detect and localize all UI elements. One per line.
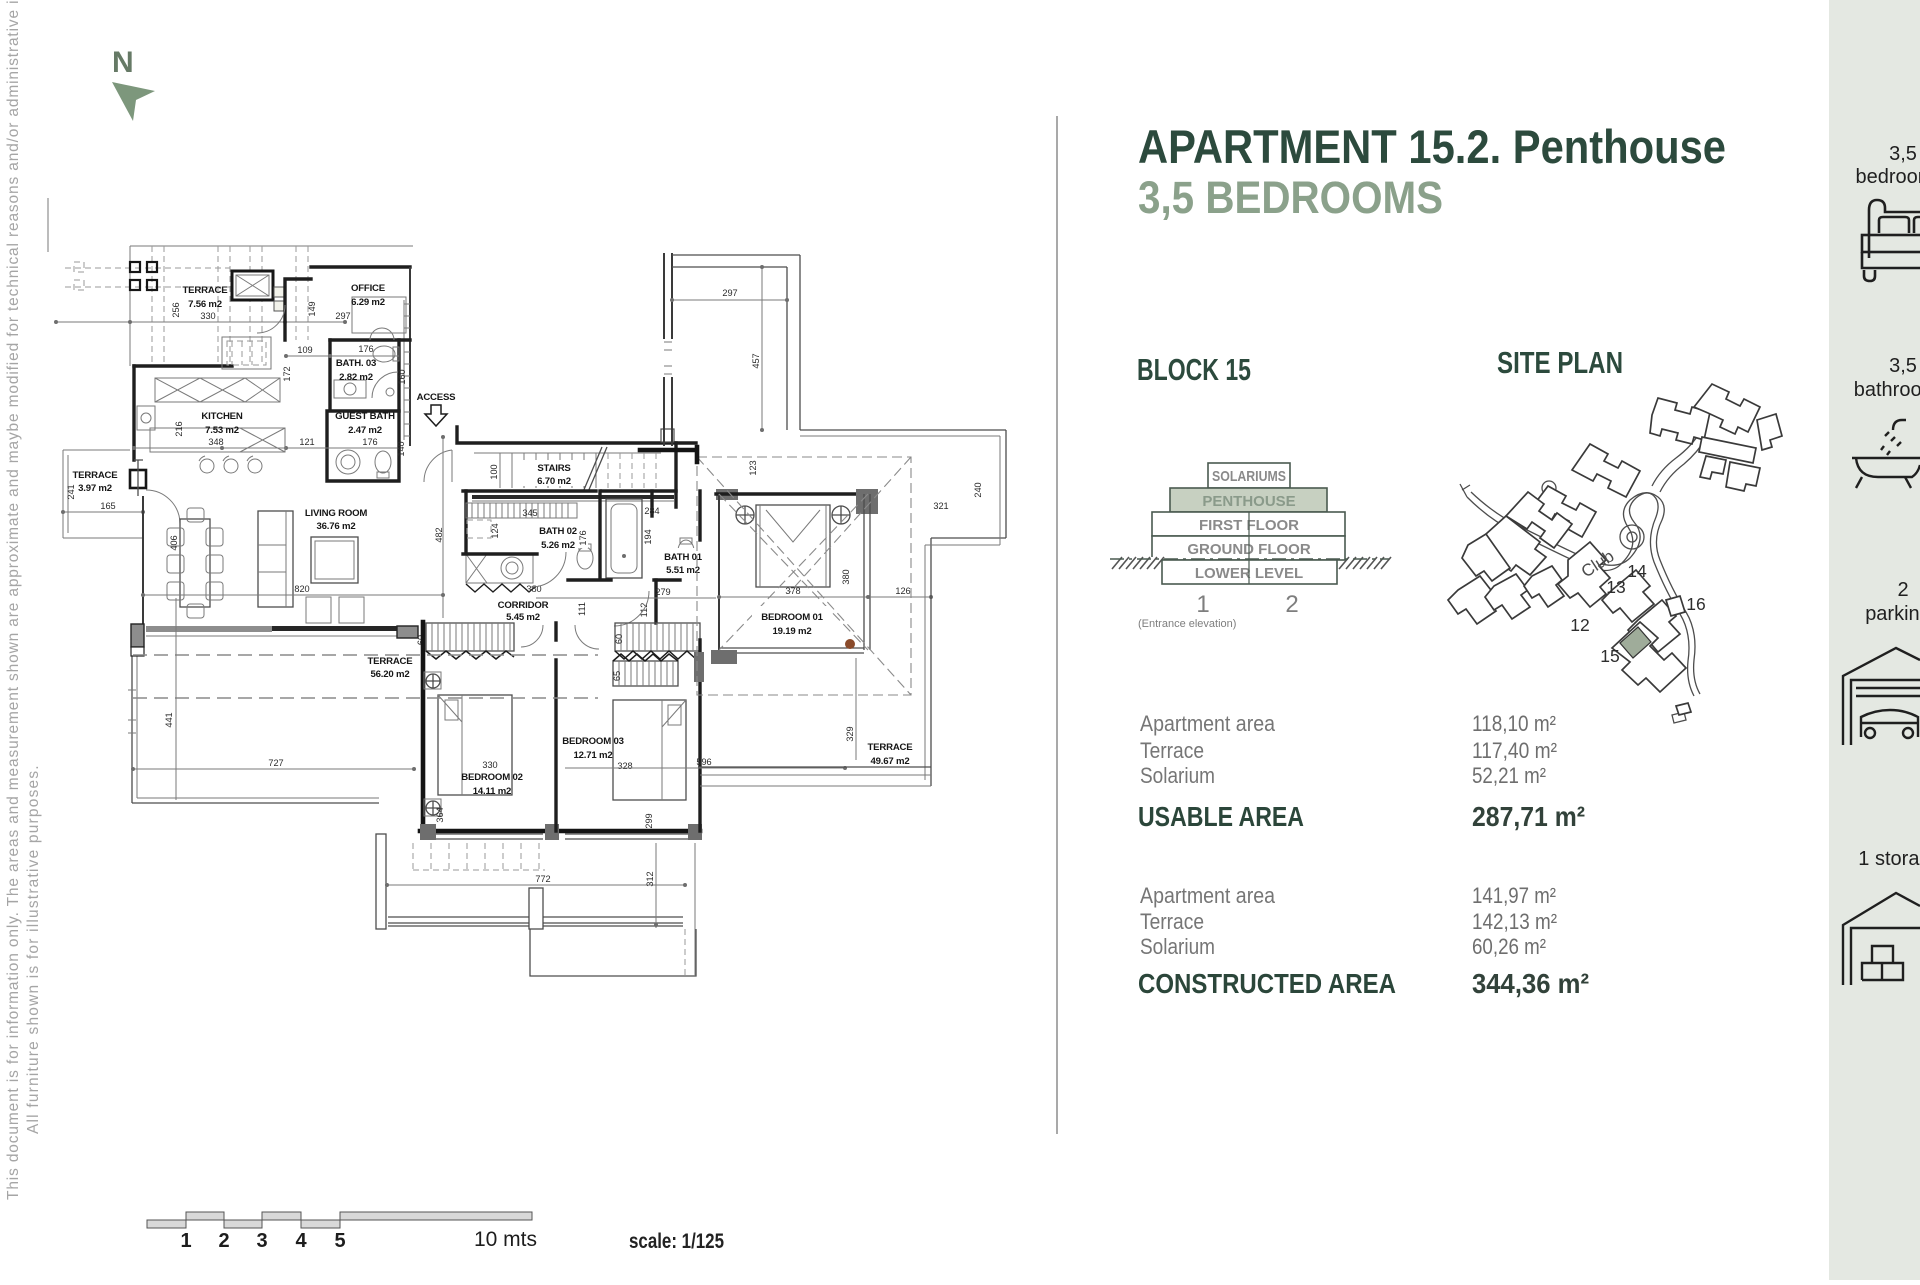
svg-text:3,5: 3,5 [1889, 355, 1917, 377]
svg-text:216: 216 [174, 421, 184, 436]
svg-text:TERRACE: TERRACE [868, 742, 914, 753]
svg-text:344,36 m²: 344,36 m² [1472, 968, 1589, 999]
svg-text:5.45 m2: 5.45 m2 [506, 612, 540, 623]
svg-text:328: 328 [617, 761, 632, 771]
svg-text:SOLARIUMS: SOLARIUMS [1212, 468, 1286, 485]
svg-text:141,97 m²: 141,97 m² [1472, 883, 1556, 908]
svg-text:297: 297 [335, 311, 350, 321]
svg-text:124: 124 [490, 523, 500, 538]
svg-text:330: 330 [482, 760, 497, 770]
svg-text:scale: 1/125: scale: 1/125 [629, 1230, 724, 1253]
svg-text:56.20 m2: 56.20 m2 [371, 669, 410, 680]
svg-text:299: 299 [644, 813, 654, 828]
svg-text:OFFICE: OFFICE [351, 283, 386, 294]
svg-text:126: 126 [895, 586, 910, 596]
svg-text:165: 165 [100, 501, 115, 511]
svg-text:2: 2 [1897, 579, 1908, 601]
svg-text:16: 16 [1686, 594, 1705, 614]
svg-text:bathrooms: bathrooms [1854, 379, 1920, 401]
svg-text:3.97 m2: 3.97 m2 [78, 483, 112, 494]
svg-text:772: 772 [535, 874, 550, 884]
svg-text:This document is for informati: This document is for information only. T… [5, 0, 22, 1200]
svg-text:2.47 m2: 2.47 m2 [348, 425, 382, 436]
svg-text:457: 457 [751, 353, 761, 368]
svg-text:3: 3 [256, 1230, 267, 1252]
svg-text:820: 820 [294, 584, 309, 594]
svg-text:329: 329 [845, 726, 855, 741]
svg-text:14: 14 [1627, 561, 1647, 581]
svg-text:parkings: parkings [1865, 603, 1920, 625]
svg-text:6.29 m2: 6.29 m2 [351, 297, 385, 308]
svg-text:111: 111 [577, 602, 587, 616]
svg-text:4: 4 [295, 1230, 307, 1252]
svg-text:240: 240 [973, 482, 983, 497]
svg-text:Apartment area: Apartment area [1140, 883, 1276, 908]
svg-text:LIVING ROOM: LIVING ROOM [305, 508, 367, 519]
svg-text:1: 1 [1196, 591, 1209, 618]
svg-text:172: 172 [282, 366, 292, 381]
svg-text:3,5 BEDROOMS: 3,5 BEDROOMS [1138, 172, 1443, 223]
svg-text:BLOCK 15: BLOCK 15 [1137, 352, 1251, 387]
svg-text:65: 65 [612, 671, 622, 681]
svg-text:100: 100 [489, 464, 499, 479]
svg-text:287,71 m²: 287,71 m² [1472, 801, 1585, 832]
svg-text:60: 60 [614, 634, 624, 644]
svg-text:406: 406 [169, 535, 179, 550]
svg-text:2: 2 [218, 1230, 229, 1252]
svg-text:142,13 m²: 142,13 m² [1472, 909, 1557, 934]
svg-text:BEDROOM 02: BEDROOM 02 [461, 772, 522, 783]
svg-text:Solarium: Solarium [1140, 763, 1215, 788]
svg-text:140: 140 [396, 441, 406, 456]
svg-text:13: 13 [1606, 577, 1625, 597]
svg-text:SITE PLAN: SITE PLAN [1497, 345, 1623, 380]
svg-text:Terrace: Terrace [1140, 909, 1204, 934]
svg-text:TERRACE: TERRACE [183, 285, 229, 296]
svg-text:330: 330 [200, 311, 215, 321]
svg-text:GUEST BATH: GUEST BATH [335, 411, 395, 422]
svg-text:312: 312 [645, 871, 655, 886]
svg-text:596: 596 [696, 757, 711, 767]
svg-text:364: 364 [435, 807, 445, 822]
svg-text:19.19 m2: 19.19 m2 [773, 626, 812, 637]
svg-text:60,26 m²: 60,26 m² [1472, 934, 1546, 959]
svg-text:378: 378 [785, 586, 800, 596]
svg-text:Apartment area: Apartment area [1140, 711, 1276, 736]
svg-text:2: 2 [1285, 591, 1298, 618]
svg-text:380: 380 [526, 584, 541, 594]
svg-text:5: 5 [334, 1230, 345, 1252]
svg-text:CORRIDOR: CORRIDOR [498, 600, 549, 611]
svg-text:N: N [112, 46, 134, 79]
svg-text:15: 15 [1600, 646, 1619, 666]
svg-text:194: 194 [643, 529, 653, 544]
svg-text:121: 121 [299, 437, 314, 447]
svg-text:49.67 m2: 49.67 m2 [871, 756, 910, 767]
svg-text:441: 441 [164, 712, 174, 727]
svg-text:6.70 m2: 6.70 m2 [537, 476, 571, 487]
svg-text:345: 345 [522, 508, 537, 518]
svg-text:118,10 m²: 118,10 m² [1472, 711, 1556, 736]
svg-text:STAIRS: STAIRS [537, 463, 571, 474]
svg-text:14.11 m2: 14.11 m2 [473, 786, 511, 797]
svg-text:160: 160 [397, 369, 407, 384]
svg-text:7.53 m2: 7.53 m2 [205, 425, 239, 436]
svg-text:5.51 m2: 5.51 m2 [666, 565, 700, 576]
svg-text:176: 176 [362, 437, 377, 447]
svg-text:bedrooms: bedrooms [1856, 166, 1920, 188]
svg-text:Terrace: Terrace [1140, 738, 1204, 763]
svg-text:PENTHOUSE: PENTHOUSE [1202, 493, 1295, 510]
svg-text:117,40 m²: 117,40 m² [1472, 738, 1557, 763]
svg-text:TERRACE: TERRACE [368, 656, 414, 667]
svg-text:380: 380 [841, 569, 851, 584]
svg-text:(Entrance elevation): (Entrance elevation) [1138, 618, 1236, 630]
svg-text:12: 12 [1570, 615, 1589, 635]
svg-text:BATH. 03: BATH. 03 [336, 358, 376, 369]
svg-text:CONSTRUCTED AREA: CONSTRUCTED AREA [1138, 968, 1396, 999]
svg-text:109: 109 [297, 345, 312, 355]
svg-text:7.56 m2: 7.56 m2 [188, 299, 222, 310]
svg-text:APARTMENT 15.2. Penthouse: APARTMENT 15.2. Penthouse [1138, 120, 1726, 173]
svg-text:12.71 m2: 12.71 m2 [574, 750, 613, 761]
svg-text:36.76 m2: 36.76 m2 [317, 521, 356, 532]
svg-text:1 storage: 1 storage [1858, 848, 1920, 870]
svg-text:BEDROOM 01: BEDROOM 01 [761, 612, 823, 623]
svg-text:321: 321 [933, 501, 948, 511]
svg-text:Solarium: Solarium [1140, 934, 1215, 959]
svg-text:10 mts: 10 mts [474, 1228, 537, 1251]
svg-text:1: 1 [180, 1230, 191, 1252]
svg-text:3,5: 3,5 [1889, 143, 1917, 165]
svg-text:TERRACE: TERRACE [73, 470, 119, 481]
svg-text:727: 727 [268, 758, 283, 768]
svg-text:297: 297 [722, 288, 737, 298]
svg-text:176: 176 [578, 530, 588, 545]
svg-text:348: 348 [208, 437, 223, 447]
svg-text:All furniture shown is for ill: All furniture shown is for illustrative … [25, 764, 42, 1134]
svg-text:52,21 m²: 52,21 m² [1472, 763, 1546, 788]
svg-text:241: 241 [66, 484, 76, 499]
svg-text:BATH 02: BATH 02 [539, 526, 577, 537]
svg-text:BEDROOM 03: BEDROOM 03 [562, 736, 623, 747]
svg-text:284: 284 [644, 506, 659, 516]
svg-text:279: 279 [655, 587, 670, 597]
svg-text:2.82 m2: 2.82 m2 [339, 372, 373, 383]
svg-text:USABLE AREA: USABLE AREA [1138, 801, 1304, 832]
svg-text:5.26 m2: 5.26 m2 [541, 540, 575, 551]
svg-text:176: 176 [358, 344, 373, 354]
svg-text:KITCHEN: KITCHEN [201, 411, 243, 422]
svg-text:123: 123 [748, 460, 758, 475]
svg-text:256: 256 [171, 302, 181, 317]
svg-text:ACCESS: ACCESS [417, 392, 457, 403]
svg-text:149: 149 [307, 301, 317, 316]
